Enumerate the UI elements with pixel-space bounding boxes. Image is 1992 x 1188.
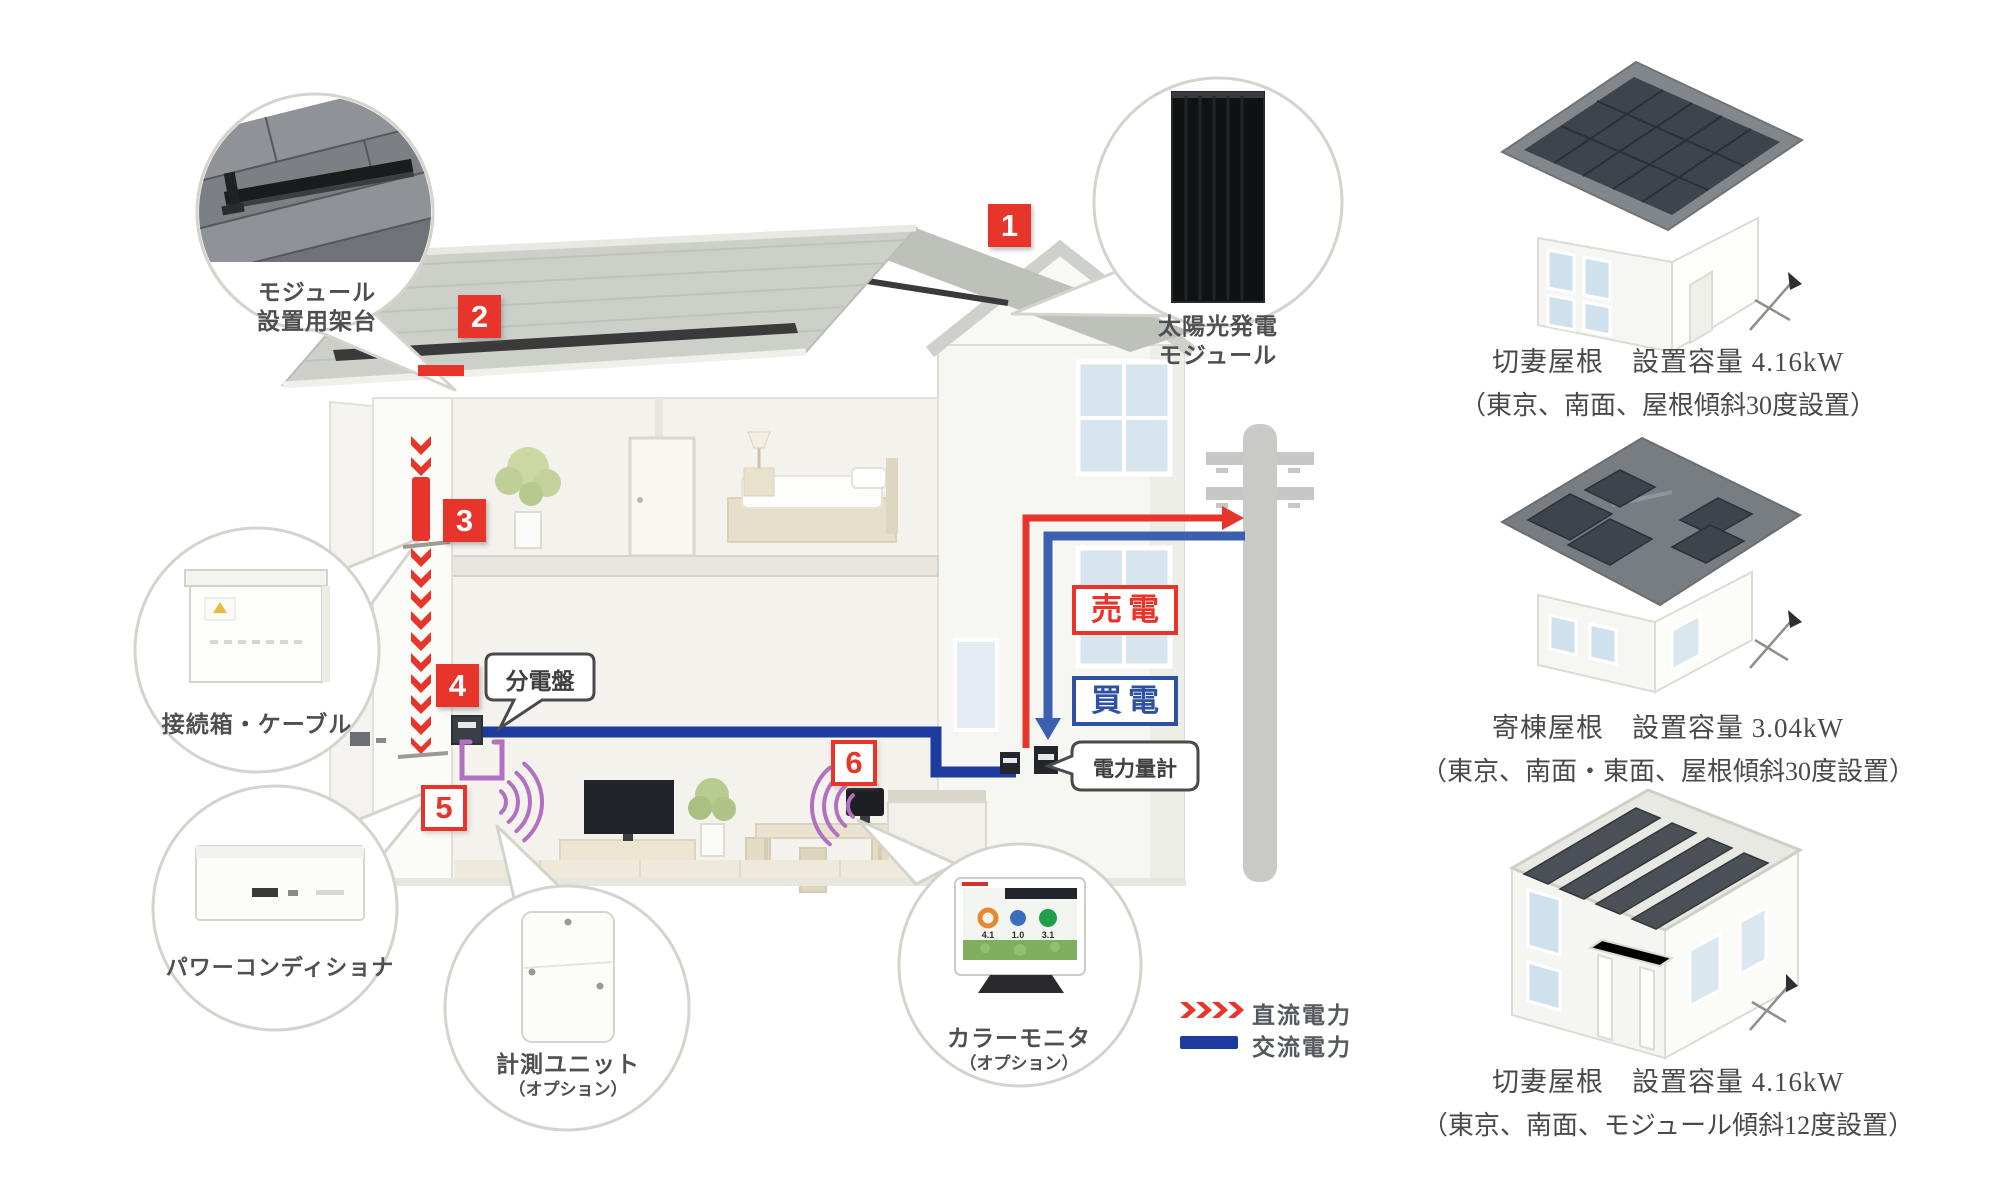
legend-ac-mark xyxy=(1180,1036,1238,1049)
color-monitor-label: カラーモニタ xyxy=(919,1024,1119,1053)
junction-box-label: 接続箱・ケーブル xyxy=(147,710,367,739)
badge2-pointer-dash xyxy=(418,365,464,376)
buy-power-label: 買電 xyxy=(1072,676,1178,726)
color-monitor-image: 4.1 1.0 3.1 xyxy=(955,878,1085,993)
junction-box-image xyxy=(185,570,330,682)
diagram-illustration: 4.1 1.0 3.1 xyxy=(0,0,1992,1188)
step-badge-4: 4 xyxy=(436,664,479,707)
example-3-title: 切妻屋根 設置容量 4.16kW xyxy=(1378,1060,1958,1099)
power-conditioner-label: パワーコンディショナ xyxy=(155,953,405,982)
example-2-condition: （東京、南面・東面、屋根傾斜30度設置） xyxy=(1378,751,1958,788)
compass-icon xyxy=(1750,610,1802,668)
measurement-unit-option: （オプション） xyxy=(468,1080,668,1100)
power-meter-label: 電力量計 xyxy=(1076,753,1194,783)
example-1-title: 切妻屋根 設置容量 4.16kW xyxy=(1378,340,1958,379)
solar-system-diagram: 4.1 1.0 3.1 xyxy=(0,0,1992,1188)
power-conditioner-image xyxy=(196,846,364,920)
solar-module-label: 太陽光発電 モジュール xyxy=(1128,312,1308,370)
example-house-flat-roof xyxy=(1512,790,1800,1058)
step-badge-1: 1 xyxy=(988,204,1031,247)
step-badge-5: 5 xyxy=(421,785,467,831)
example-3-condition: （東京、南面、モジュール傾斜12度設置） xyxy=(1378,1105,1958,1142)
utility-pole xyxy=(1206,424,1314,882)
legend-dc-mark xyxy=(1180,1002,1244,1018)
mounting-rack-label: モジュール 設置用架台 xyxy=(227,278,407,336)
house-interior xyxy=(452,398,986,892)
legend-dc-label: 直流電力 xyxy=(1252,996,1352,1030)
example-1-caption: 切妻屋根 設置容量 4.16kW （東京、南面、屋根傾斜30度設置） xyxy=(1378,340,1958,422)
example-house-gable-30deg xyxy=(1502,62,1802,352)
step-badge-2: 2 xyxy=(458,295,501,338)
example-house-hipped xyxy=(1502,438,1802,692)
solar-module-label-line1: 太陽光発電 xyxy=(1128,312,1308,341)
sell-power-label: 売電 xyxy=(1072,585,1178,635)
mounting-rack-label-line1: モジュール xyxy=(227,278,407,307)
monitor-logo xyxy=(962,882,988,886)
mounting-rack-label-line2: 設置用架台 xyxy=(227,307,407,336)
example-3-caption: 切妻屋根 設置容量 4.16kW （東京、南面、モジュール傾斜12度設置） xyxy=(1378,1060,1958,1142)
example-2-caption: 寄棟屋根 設置容量 3.04kW （東京、南面・東面、屋根傾斜30度設置） xyxy=(1378,706,1958,788)
monitor-value-1: 4.1 xyxy=(982,930,995,940)
legend-ac-label: 交流電力 xyxy=(1252,1028,1352,1062)
example-1-condition: （東京、南面、屋根傾斜30度設置） xyxy=(1378,385,1958,422)
solar-module-label-line2: モジュール xyxy=(1128,341,1308,370)
distribution-board-label: 分電盤 xyxy=(486,662,594,696)
measurement-unit-image xyxy=(522,912,614,1042)
step-badge-6: 6 xyxy=(831,740,877,786)
solar-module-image xyxy=(1172,92,1264,302)
measurement-unit-label: 計測ユニット xyxy=(468,1050,668,1079)
step-badge-3: 3 xyxy=(443,499,486,542)
example-2-title: 寄棟屋根 設置容量 3.04kW xyxy=(1378,706,1958,745)
monitor-value-2: 1.0 xyxy=(1012,930,1025,940)
monitor-value-3: 3.1 xyxy=(1042,930,1055,940)
color-monitor-option: （オプション） xyxy=(919,1054,1119,1074)
